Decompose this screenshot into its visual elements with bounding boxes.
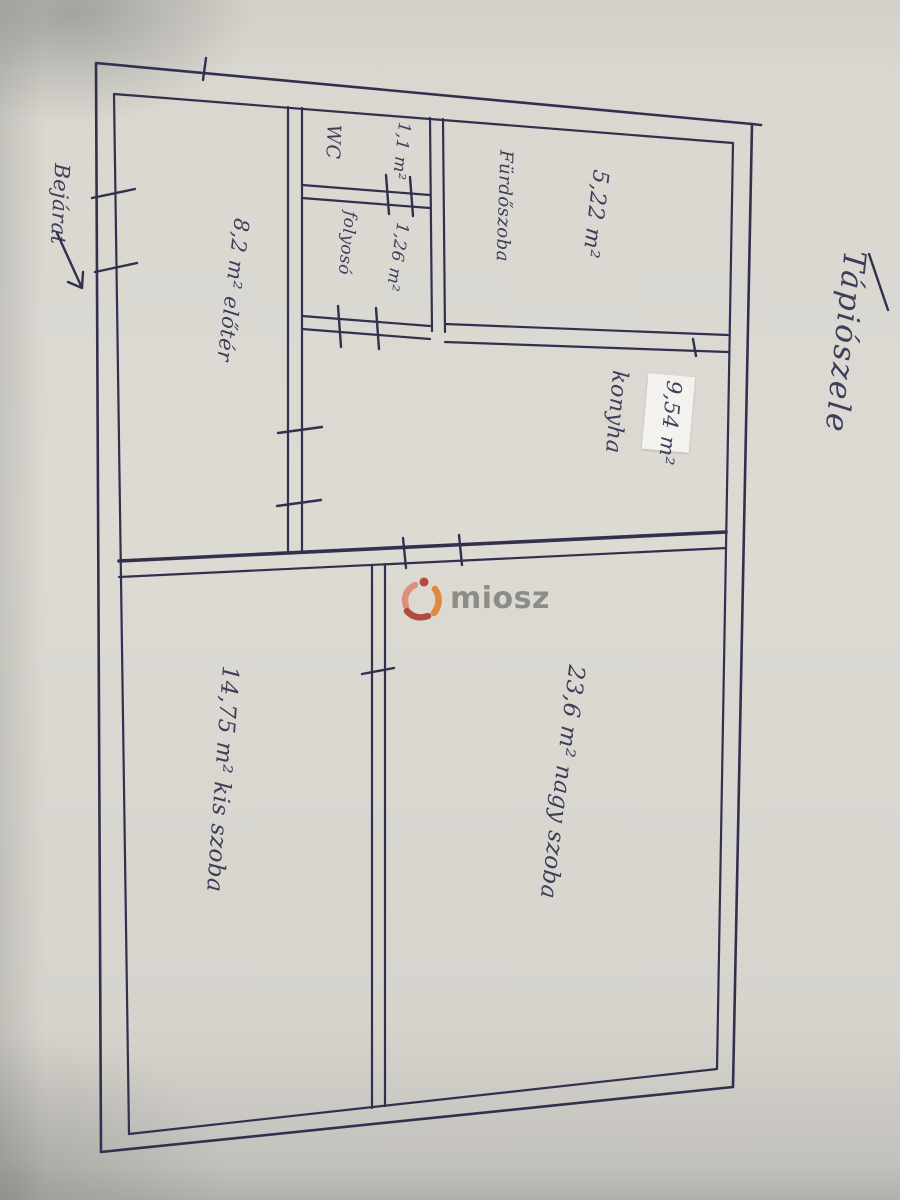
door-tick (386, 175, 389, 214)
door-tick (410, 177, 413, 216)
floorplan-photo: Bejárat Tápiószele 8,2 m² előtér WC 1,1 … (0, 0, 900, 1200)
wall-folyoso-bottom-b (302, 329, 430, 339)
room-label-wc: WC (321, 124, 344, 160)
door-tick (362, 668, 394, 674)
room-label-furdoszoba: Fürdőszoba (492, 150, 517, 263)
outer-wall-overshoot (752, 124, 761, 125)
watermark: miosz (399, 573, 550, 623)
wall-bathroom-bottom-b (445, 342, 728, 352)
door-tick (338, 306, 341, 347)
wall-folyoso-bottom-a (302, 316, 430, 326)
wall-middle-thick (119, 532, 726, 561)
door-tick (376, 308, 379, 349)
wall-bathroom-bottom-a (445, 324, 728, 335)
wall-bathroom-left-a (430, 118, 432, 331)
door-tick (693, 339, 696, 356)
wall-bathroom-left-b (443, 119, 445, 332)
miosz-logo-icon (399, 575, 443, 621)
wall-tick (203, 58, 206, 80)
door-tick (277, 500, 321, 506)
logo-dot (420, 578, 429, 587)
entrance-door-tick (92, 189, 135, 198)
door-tick (278, 427, 322, 433)
entrance-label: Bejárat (46, 163, 74, 246)
title-underline (869, 254, 888, 310)
watermark-text: miosz (450, 581, 550, 616)
